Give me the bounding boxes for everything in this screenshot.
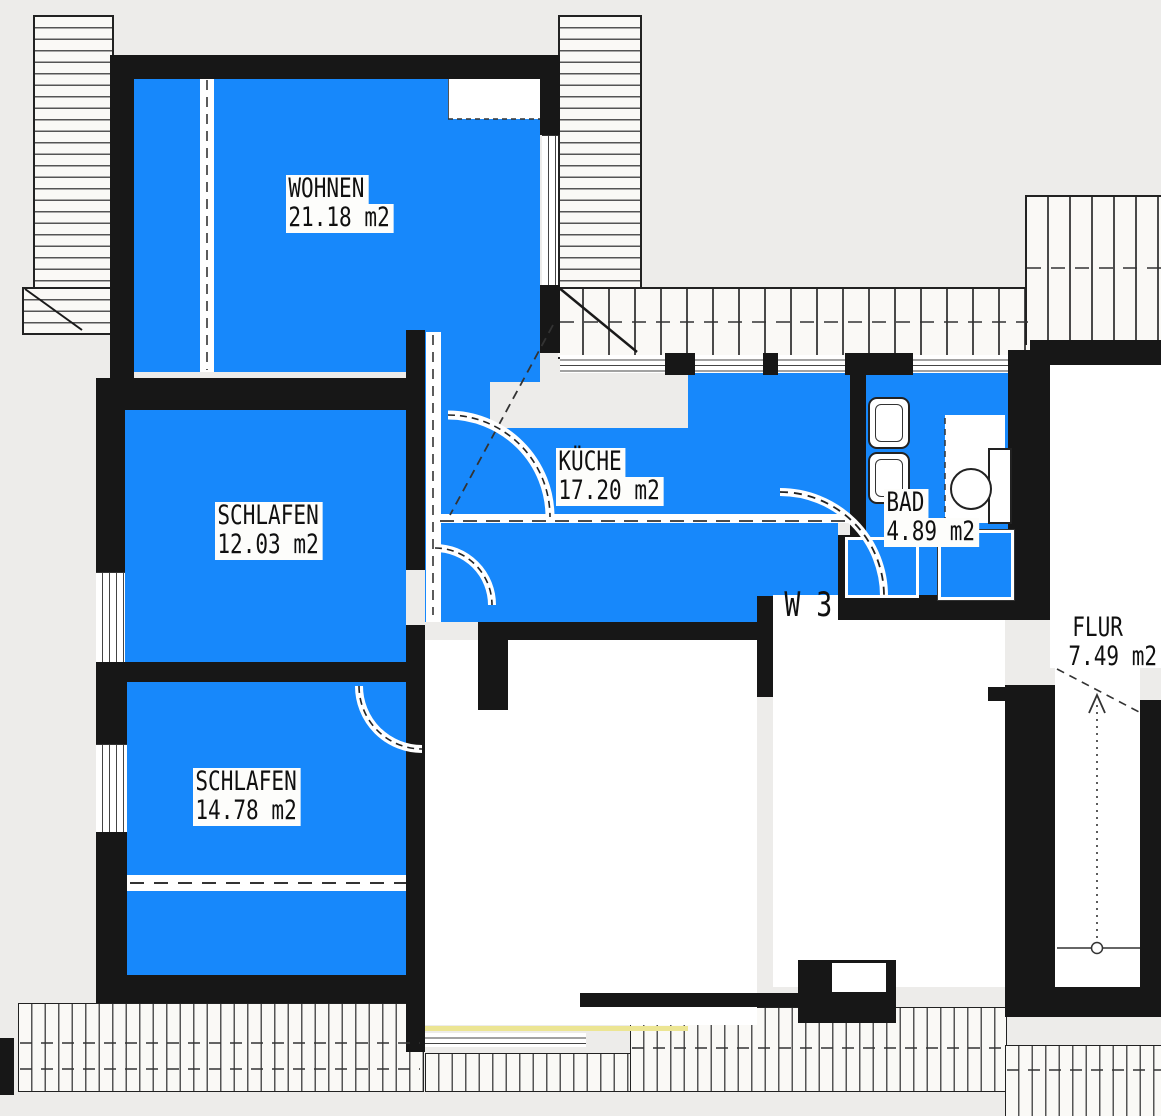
room-name: KÜCHE (556, 448, 626, 477)
window-band-kueche-bad (560, 355, 1008, 373)
room-area: 4.89 m2 (884, 518, 979, 547)
wall-notch (832, 963, 886, 992)
label-kueche: KÜCHE 17.20 m2 (556, 448, 664, 506)
room-name: BAD (884, 489, 928, 518)
kniestock-strip-corridor (426, 332, 441, 622)
wall (540, 55, 560, 135)
dormer-niche-wohnen (448, 77, 541, 119)
wall (490, 622, 773, 640)
room-kueche-fill (688, 373, 850, 519)
window-band-schlafen2 (127, 875, 408, 891)
wall (850, 370, 866, 535)
wall (96, 410, 125, 572)
wall (110, 55, 134, 380)
label-schlafen2: SCHLAFEN 14.78 m2 (193, 768, 301, 826)
wall (1030, 340, 1161, 365)
wall (1005, 987, 1161, 1017)
roof-hatch-band (558, 287, 1030, 359)
window-schlafen1 (96, 572, 125, 667)
floor-plan: WOHNEN 21.18 m2 SCHLAFEN 12.03 m2 SCHLAF… (0, 0, 1161, 1116)
stairwell-shaft (1055, 668, 1140, 987)
threshold-line-yellow (408, 1026, 688, 1031)
roof-hatch-top-middle (558, 15, 642, 297)
terrace-hatch-bottom-right (1005, 1045, 1161, 1116)
room-name: SCHLAFEN (193, 768, 301, 797)
wall (96, 975, 411, 1003)
label-bad: BAD 4.89 m2 (884, 489, 979, 547)
window-schlafen2 (96, 744, 127, 834)
room-area: 7.49 m2 (1066, 643, 1161, 672)
landing-area (773, 595, 1005, 987)
room-area: 12.03 m2 (215, 531, 323, 560)
wall (406, 473, 425, 570)
wall (110, 55, 560, 79)
label-schlafen1: SCHLAFEN 12.03 m2 (215, 502, 323, 560)
wall (96, 662, 408, 682)
wall (757, 596, 773, 697)
wall (763, 353, 778, 375)
hall-fill (425, 517, 773, 622)
roof-hatch-top-right (1025, 195, 1161, 345)
room-area: 14.78 m2 (193, 797, 301, 826)
roof-hatch-top-left (33, 15, 114, 291)
room-area: 21.18 m2 (286, 204, 394, 233)
room-name: WOHNEN (286, 175, 368, 204)
room-area: 17.20 m2 (556, 477, 664, 506)
terrace-hatch-bottom-mid-left (425, 1053, 632, 1092)
sill-neighbor-room (408, 1033, 586, 1047)
corridor-top-fill (425, 330, 540, 382)
room-name: FLUR (1066, 614, 1127, 643)
wall (580, 993, 798, 1007)
wall (665, 353, 695, 375)
room-schlafen2-fill (127, 682, 406, 975)
wall (540, 285, 560, 353)
label-wohnen: WOHNEN 21.18 m2 (286, 175, 394, 233)
wall (0, 1038, 14, 1095)
terrace-hatch-bottom-left (18, 1003, 424, 1092)
wall-stairwell-right (1140, 700, 1161, 987)
room-name: SCHLAFEN (215, 502, 323, 531)
wall (406, 625, 425, 1052)
kueche-hall-boundary (435, 514, 855, 523)
neighbor-room (425, 640, 757, 1025)
kniestock-strip-wohnen (200, 77, 214, 372)
wall (406, 330, 425, 473)
label-unit: W 3 (782, 588, 836, 624)
wall (1008, 350, 1050, 620)
unit-label: W 3 (782, 588, 836, 624)
window-wohnen-east (542, 135, 558, 287)
wall (845, 353, 913, 375)
hall-fill-east (773, 517, 838, 595)
wall (988, 687, 1005, 701)
roof-hatch-top-left-foot (22, 287, 114, 335)
wall-stairwell-left (1005, 685, 1055, 987)
sink-fixture (868, 397, 910, 449)
label-flur: FLUR 7.49 m2 (1066, 614, 1161, 672)
wall (96, 378, 406, 410)
